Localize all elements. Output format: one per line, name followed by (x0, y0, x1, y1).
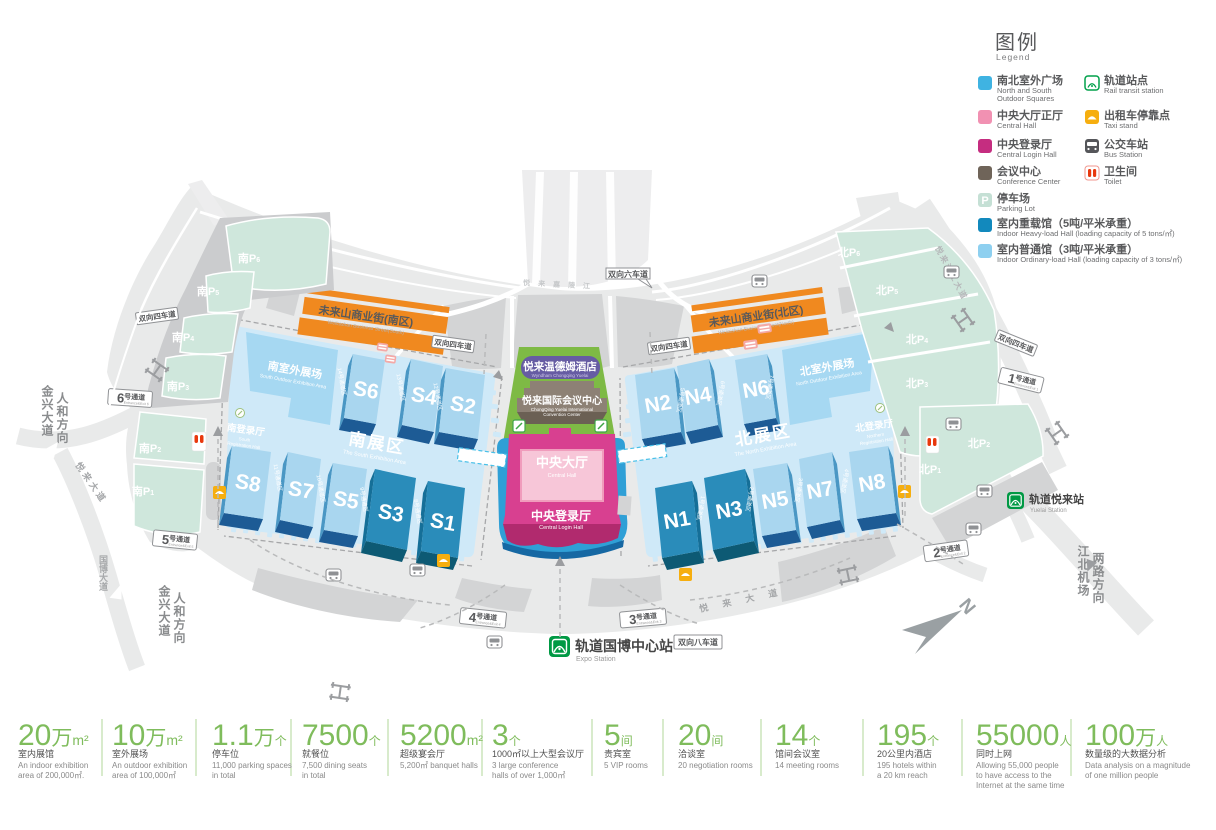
svg-text:5 VIP rooms: 5 VIP rooms (604, 761, 648, 770)
svg-text:a 20 km reach: a 20 km reach (877, 771, 928, 780)
svg-text:人和方向: 人和方向 (55, 391, 69, 444)
svg-text:会议中心: 会议中心 (997, 164, 1041, 178)
svg-text:1000㎡以上大型会议厅: 1000㎡以上大型会议厅 (492, 748, 584, 759)
svg-text:中央登录厅: 中央登录厅 (531, 508, 591, 523)
svg-text:in total: in total (302, 771, 326, 780)
svg-text:室内普通馆（3吨/平米承重）: 室内普通馆（3吨/平米承重） (997, 242, 1138, 256)
svg-text:S5: S5 (331, 487, 361, 514)
svg-text:Central Hall: Central Hall (548, 473, 577, 479)
svg-text:N3: N3 (714, 497, 744, 524)
svg-text:Central Login Hall: Central Login Hall (997, 150, 1057, 159)
svg-text:in total: in total (212, 771, 236, 780)
svg-text:就餐位: 就餐位 (302, 748, 329, 759)
svg-text:南北室外广场: 南北室外广场 (997, 73, 1063, 87)
svg-text:室内展馆: 室内展馆 (18, 748, 54, 759)
svg-text:金兴大道: 金兴大道 (40, 384, 54, 437)
svg-text:同时上网: 同时上网 (976, 748, 1012, 759)
svg-text:N4: N4 (683, 383, 714, 410)
svg-text:Data analysis on a magnitude: Data analysis on a magnitude (1085, 761, 1191, 770)
svg-text:195 hotels within: 195 hotels within (877, 761, 937, 770)
svg-text:Expo Station: Expo Station (576, 656, 616, 663)
svg-text:Rail transit station: Rail transit station (1104, 86, 1164, 95)
svg-text:双向八车道: 双向八车道 (678, 637, 718, 647)
svg-text:人和方向: 人和方向 (172, 591, 186, 644)
svg-text:Taxi stand: Taxi stand (1104, 121, 1138, 130)
svg-text:S3: S3 (376, 500, 405, 527)
svg-text:Yuelai Station: Yuelai Station (1030, 508, 1067, 514)
svg-text:halls of over 1,000㎡: halls of over 1,000㎡ (492, 771, 565, 780)
svg-text:Wyndham Chongqing Yuelai: Wyndham Chongqing Yuelai (532, 373, 589, 378)
svg-text:3 large conference: 3 large conference (492, 761, 559, 770)
svg-text:Indoor Heavy-load Hall (loadin: Indoor Heavy-load Hall (loading capacity… (997, 229, 1175, 238)
svg-text:超级宴会厅: 超级宴会厅 (400, 748, 445, 759)
svg-text:贵宾室: 贵宾室 (604, 748, 631, 759)
svg-text:Allowing 55,000 people: Allowing 55,000 people (976, 761, 1059, 770)
svg-text:卫生间: 卫生间 (1104, 164, 1137, 178)
svg-text:Legend: Legend (996, 52, 1030, 62)
svg-text:图例: 图例 (995, 31, 1039, 54)
svg-text:中央大厅: 中央大厅 (536, 455, 588, 470)
svg-text:to have access to the: to have access to the (976, 771, 1052, 780)
svg-text:N7: N7 (805, 477, 835, 504)
svg-text:室外展场: 室外展场 (112, 748, 148, 759)
svg-text:Internet at the same time: Internet at the same time (976, 781, 1065, 790)
svg-text:An outdoor exhibition: An outdoor exhibition (112, 761, 187, 770)
svg-text:S1: S1 (428, 509, 458, 536)
svg-text:S2: S2 (448, 392, 477, 419)
svg-text:双向六车道: 双向六车道 (608, 269, 648, 279)
svg-text:N5: N5 (760, 487, 791, 514)
svg-text:Parking Lot: Parking Lot (997, 204, 1036, 213)
svg-text:N2: N2 (643, 391, 673, 418)
svg-text:Outdoor Squares: Outdoor Squares (997, 94, 1054, 103)
svg-text:停车场: 停车场 (997, 191, 1030, 205)
svg-text:两路方向: 两路方向 (1091, 552, 1105, 604)
svg-text:area of 200,000㎡.: area of 200,000㎡. (18, 771, 84, 780)
svg-text:轨道悦来站: 轨道悦来站 (1029, 492, 1084, 506)
svg-text:55000人: 55000人 (976, 719, 1071, 752)
svg-text:14 meeting rooms: 14 meeting rooms (775, 761, 839, 770)
svg-text:An indoor exhibition: An indoor exhibition (18, 761, 88, 770)
svg-text:国博大道: 国博大道 (98, 555, 108, 592)
svg-text:N8: N8 (857, 470, 888, 497)
svg-text:Conference Center: Conference Center (997, 177, 1061, 186)
svg-text:悦来国际会议中心: 悦来国际会议中心 (522, 394, 602, 407)
svg-text:of one million people: of one million people (1085, 771, 1159, 780)
svg-text:轨道国博中心站: 轨道国博中心站 (575, 638, 673, 654)
svg-text:5,200㎡ banquet halls: 5,200㎡ banquet halls (400, 761, 478, 770)
svg-text:出租车停靠点: 出租车停靠点 (1104, 108, 1170, 122)
svg-text:area of 100,000㎡: area of 100,000㎡ (112, 771, 176, 780)
svg-text:中央大厅正厅: 中央大厅正厅 (997, 108, 1063, 122)
svg-text:S7: S7 (286, 477, 315, 504)
svg-text:Toilet: Toilet (1104, 177, 1122, 186)
svg-text:中央登录厅: 中央登录厅 (997, 137, 1052, 151)
svg-text:洽谈室: 洽谈室 (678, 748, 705, 759)
svg-text:Central Hall: Central Hall (997, 121, 1037, 130)
svg-text:停车位: 停车位 (212, 748, 239, 759)
svg-text:N1: N1 (662, 507, 693, 534)
svg-text:S6: S6 (351, 377, 380, 404)
svg-text:11,000 parking spaces: 11,000 parking spaces (212, 761, 292, 770)
svg-text:Indoor Ordinary-load Hall (loa: Indoor Ordinary-load Hall (loading capac… (997, 255, 1183, 264)
svg-text:数量级的大数据分析: 数量级的大数据分析 (1085, 748, 1166, 759)
svg-text:20公里内酒店: 20公里内酒店 (877, 748, 932, 759)
svg-text:金兴大道: 金兴大道 (157, 584, 171, 637)
svg-text:公交车站: 公交车站 (1104, 137, 1148, 151)
svg-text:轨道站点: 轨道站点 (1104, 73, 1148, 87)
svg-text:Bus Station: Bus Station (1104, 150, 1142, 159)
svg-text:Central Login Hall: Central Login Hall (539, 525, 583, 531)
svg-text:Convention Center: Convention Center (543, 412, 581, 417)
svg-text:悦来温德姆酒店: 悦来温德姆酒店 (523, 360, 597, 373)
svg-text:20 negotiation rooms: 20 negotiation rooms (678, 761, 753, 770)
svg-text:P: P (981, 195, 988, 207)
svg-text:馆间会议室: 馆间会议室 (775, 748, 820, 759)
svg-text:室内重载馆（5吨/平米承重）: 室内重载馆（5吨/平米承重） (997, 216, 1138, 230)
svg-text:7,500 dining seats: 7,500 dining seats (302, 761, 367, 770)
svg-text:S8: S8 (233, 470, 263, 497)
